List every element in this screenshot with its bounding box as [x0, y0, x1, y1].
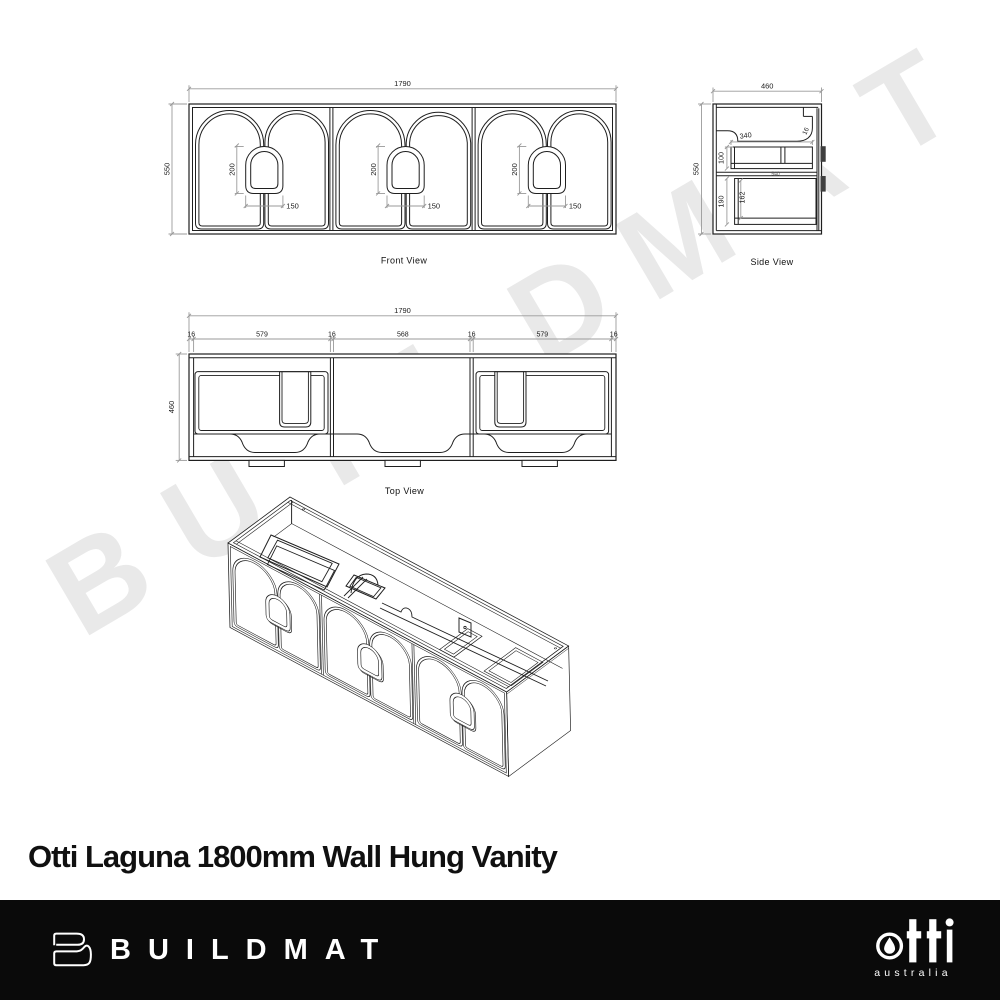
svg-text:540: 540 — [771, 171, 780, 177]
svg-text:200: 200 — [369, 163, 378, 176]
svg-text:200: 200 — [228, 163, 237, 176]
svg-text:579: 579 — [536, 332, 548, 339]
svg-text:16: 16 — [468, 332, 476, 339]
svg-text:150: 150 — [569, 201, 582, 210]
svg-text:340: 340 — [739, 130, 752, 141]
svg-text:200: 200 — [510, 163, 519, 176]
svg-text:Front View: Front View — [381, 256, 428, 266]
svg-text:B: B — [24, 495, 174, 663]
svg-text:460: 460 — [167, 401, 176, 414]
svg-text:T: T — [837, 23, 975, 184]
svg-text:Top View: Top View — [385, 486, 424, 496]
svg-text:460: 460 — [761, 82, 774, 91]
svg-text:16: 16 — [187, 332, 195, 339]
svg-text:150: 150 — [286, 201, 299, 210]
svg-text:568: 568 — [397, 332, 409, 339]
svg-text:150: 150 — [428, 201, 441, 210]
svg-text:100: 100 — [717, 152, 726, 164]
svg-text:550: 550 — [691, 163, 700, 176]
svg-text:1790: 1790 — [394, 79, 411, 88]
svg-text:Side View: Side View — [750, 257, 793, 267]
svg-text:579: 579 — [256, 332, 268, 339]
svg-text:16: 16 — [328, 332, 336, 339]
svg-text:162: 162 — [738, 192, 747, 204]
svg-text:1790: 1790 — [394, 306, 411, 315]
svg-text:australia: australia — [874, 967, 952, 979]
svg-text:16: 16 — [610, 332, 618, 339]
svg-text:550: 550 — [162, 163, 171, 176]
svg-text:190: 190 — [717, 196, 726, 208]
